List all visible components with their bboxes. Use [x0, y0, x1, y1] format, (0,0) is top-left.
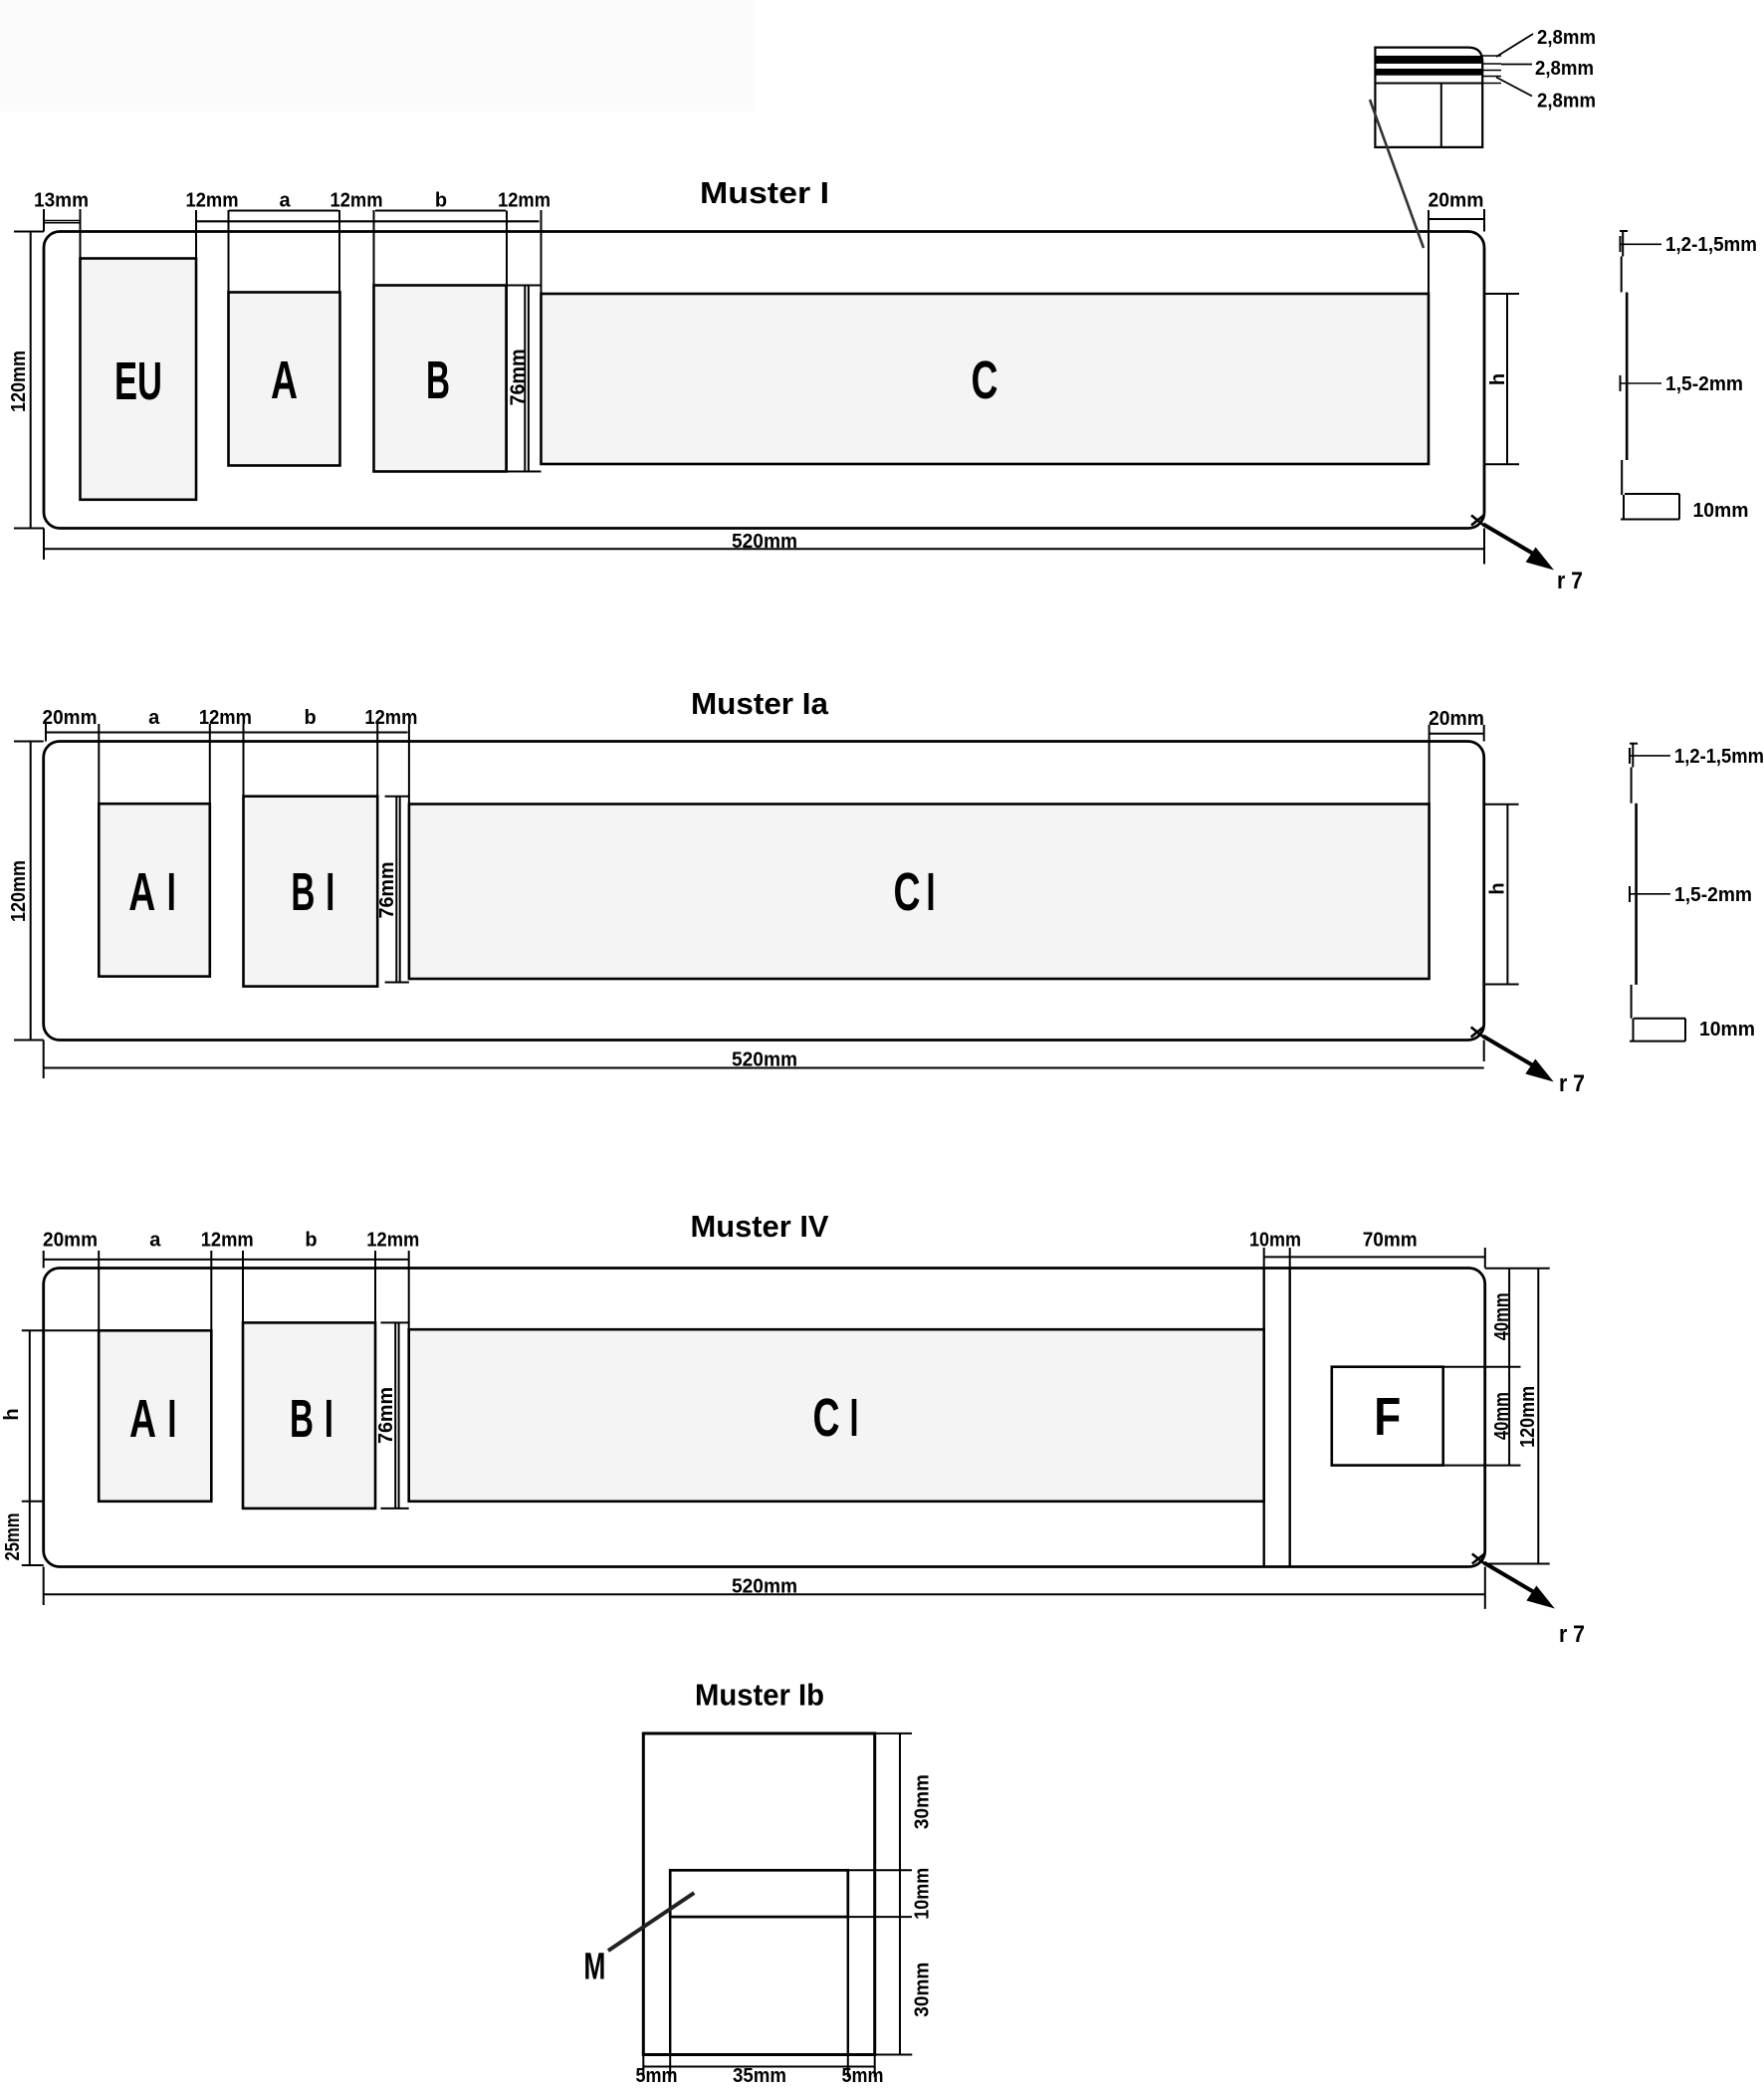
- svg-text:EU: EU: [114, 351, 162, 411]
- svg-text:30mm: 30mm: [912, 1963, 934, 2017]
- svg-text:C: C: [813, 1388, 840, 1448]
- svg-text:10mm: 10mm: [1249, 1230, 1301, 1252]
- svg-text:a: a: [279, 190, 291, 212]
- svg-text:520mm: 520mm: [732, 1576, 797, 1598]
- svg-text:40mm: 40mm: [1491, 1392, 1513, 1440]
- svg-text:70mm: 70mm: [1363, 1230, 1418, 1252]
- svg-text:B: B: [291, 862, 315, 922]
- svg-text:76mm: 76mm: [508, 349, 530, 406]
- svg-text:I: I: [325, 1389, 333, 1449]
- svg-text:C: C: [894, 862, 921, 922]
- svg-text:r 7: r 7: [1559, 1070, 1585, 1097]
- svg-text:h: h: [1487, 373, 1509, 385]
- svg-text:Muster I: Muster I: [700, 175, 829, 210]
- svg-text:12mm: 12mm: [201, 1230, 254, 1252]
- svg-text:b: b: [304, 707, 316, 729]
- svg-text:1,5-2mm: 1,5-2mm: [1665, 373, 1743, 395]
- svg-text:1,2-1,5mm: 1,2-1,5mm: [1674, 746, 1764, 768]
- svg-text:12mm: 12mm: [498, 190, 551, 212]
- svg-text:a: a: [148, 707, 160, 729]
- svg-text:10mm: 10mm: [912, 1868, 934, 1920]
- svg-text:I: I: [167, 1389, 176, 1449]
- svg-text:b: b: [435, 190, 447, 212]
- svg-text:C: C: [972, 350, 998, 410]
- svg-text:40mm: 40mm: [1491, 1292, 1513, 1340]
- svg-text:30mm: 30mm: [912, 1774, 934, 1829]
- svg-text:120mm: 120mm: [8, 860, 30, 922]
- svg-text:10mm: 10mm: [1693, 500, 1749, 522]
- svg-text:I: I: [927, 862, 936, 922]
- svg-text:1,2-1,5mm: 1,2-1,5mm: [1665, 234, 1757, 256]
- svg-text:r 7: r 7: [1557, 568, 1583, 594]
- svg-text:A: A: [271, 350, 298, 410]
- svg-text:20mm: 20mm: [1429, 190, 1484, 212]
- svg-text:I: I: [850, 1388, 859, 1448]
- svg-text:520mm: 520mm: [732, 1049, 797, 1071]
- svg-text:520mm: 520mm: [732, 531, 797, 553]
- svg-text:20mm: 20mm: [1429, 708, 1484, 730]
- svg-text:B: B: [426, 350, 450, 410]
- svg-text:A: A: [128, 862, 155, 922]
- svg-text:b: b: [305, 1230, 317, 1252]
- svg-text:12mm: 12mm: [366, 1230, 419, 1252]
- svg-text:120mm: 120mm: [1517, 1386, 1539, 1448]
- svg-text:Muster Ia: Muster Ia: [691, 686, 829, 721]
- svg-text:Muster Ib: Muster Ib: [695, 1678, 824, 1713]
- svg-text:25mm: 25mm: [2, 1513, 24, 1561]
- svg-text:M: M: [583, 1947, 605, 1988]
- svg-text:12mm: 12mm: [331, 190, 383, 212]
- svg-text:120mm: 120mm: [8, 350, 30, 412]
- svg-text:I: I: [167, 862, 176, 922]
- svg-text:2,8mm: 2,8mm: [1535, 58, 1594, 80]
- svg-text:12mm: 12mm: [186, 190, 239, 212]
- svg-text:a: a: [149, 1230, 161, 1252]
- svg-text:35mm: 35mm: [733, 2065, 786, 2083]
- svg-text:r 7: r 7: [1559, 1621, 1585, 1648]
- svg-text:1,5-2mm: 1,5-2mm: [1674, 884, 1752, 906]
- svg-text:A: A: [129, 1389, 156, 1449]
- svg-text:2,8mm: 2,8mm: [1537, 27, 1596, 49]
- svg-text:Muster IV: Muster IV: [691, 1209, 829, 1244]
- svg-text:F: F: [1374, 1387, 1401, 1447]
- svg-text:5mm: 5mm: [842, 2065, 884, 2083]
- svg-text:5mm: 5mm: [636, 2065, 678, 2083]
- svg-text:76mm: 76mm: [375, 1387, 397, 1444]
- svg-text:20mm: 20mm: [43, 707, 98, 729]
- svg-text:10mm: 10mm: [1699, 1019, 1755, 1041]
- svg-text:2,8mm: 2,8mm: [1537, 91, 1596, 113]
- svg-text:h: h: [1, 1408, 23, 1420]
- svg-text:h: h: [1487, 882, 1509, 894]
- svg-text:76mm: 76mm: [376, 862, 398, 919]
- svg-text:20mm: 20mm: [43, 1230, 98, 1252]
- svg-text:I: I: [326, 862, 334, 922]
- svg-text:13mm: 13mm: [34, 190, 89, 212]
- svg-text:B: B: [290, 1389, 314, 1449]
